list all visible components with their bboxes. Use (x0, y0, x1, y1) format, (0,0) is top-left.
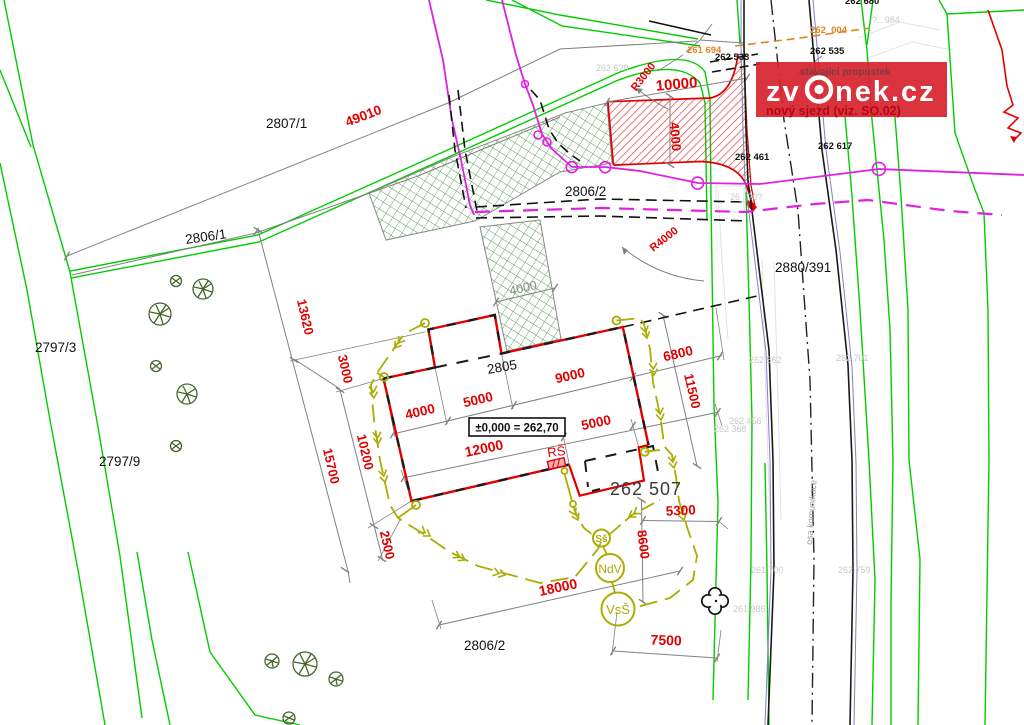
svg-text:2806/2: 2806/2 (565, 184, 606, 199)
svg-text:4000: 4000 (667, 122, 684, 152)
svg-text:262 6?0: 262 6?0 (596, 63, 629, 73)
svg-text:5300: 5300 (665, 502, 696, 519)
svg-text:2797/9: 2797/9 (99, 454, 140, 469)
svg-text:262 535: 262 535 (810, 46, 845, 57)
svg-text:±0,000 = 262,70: ±0,000 = 262,70 (475, 423, 558, 435)
svg-text:262 562: 262 562 (749, 355, 782, 365)
svg-text:261 694: 261 694 (687, 45, 722, 56)
svg-text:262 461: 262 461 (735, 152, 770, 163)
svg-text:~?.. 984: ~?.. 984 (867, 15, 900, 25)
svg-text:262 701: 262 701 (836, 353, 869, 363)
svg-text:VsŠ: VsŠ (606, 602, 630, 617)
svg-text:262 759: 262 759 (838, 565, 871, 575)
svg-text:2797/3: 2797/3 (35, 340, 76, 355)
svg-text:2806/2: 2806/2 (464, 638, 505, 653)
svg-text:262 680: 262 680 (845, 0, 879, 7)
svg-text:262 368: 262 368 (714, 424, 747, 434)
svg-text:261 986: 261 986 (733, 604, 766, 614)
svg-text:262 507: 262 507 (610, 479, 682, 499)
svg-text:262_004: 262_004 (810, 25, 848, 36)
svg-text:Sš: Sš (595, 534, 608, 545)
svg-text:26_ ?0?: 26_ ?0? (730, 192, 763, 202)
svg-text:2880/391: 2880/391 (775, 260, 831, 275)
svg-text:RŠ: RŠ (546, 443, 566, 460)
svg-text:261 700: 261 700 (751, 565, 784, 575)
svg-text:nek.cz: nek.cz (835, 76, 936, 108)
svg-text:NdV: NdV (598, 562, 621, 576)
svg-text:262 617: 262 617 (818, 141, 852, 152)
svg-text:2807/1: 2807/1 (266, 116, 307, 131)
svg-text:zv: zv (766, 76, 801, 108)
svg-text:10000: 10000 (655, 74, 698, 95)
svg-text:7500: 7500 (650, 631, 682, 648)
